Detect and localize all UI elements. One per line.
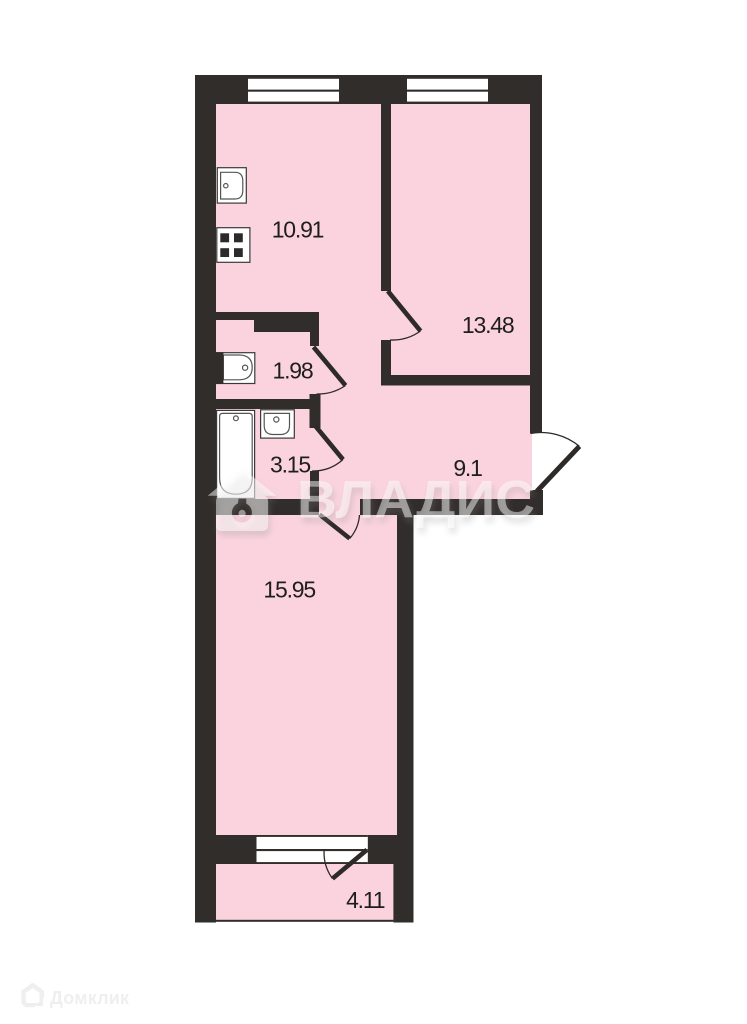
svg-text:1.98: 1.98	[273, 357, 313, 383]
svg-text:4.11: 4.11	[346, 887, 385, 913]
svg-text:13.48: 13.48	[462, 312, 514, 338]
svg-text:15.95: 15.95	[263, 577, 315, 603]
svg-text:ВЛАДИС: ВЛАДИС	[297, 471, 535, 530]
svg-text:10.91: 10.91	[272, 217, 324, 243]
svg-text:Домклик: Домклик	[50, 988, 130, 1008]
